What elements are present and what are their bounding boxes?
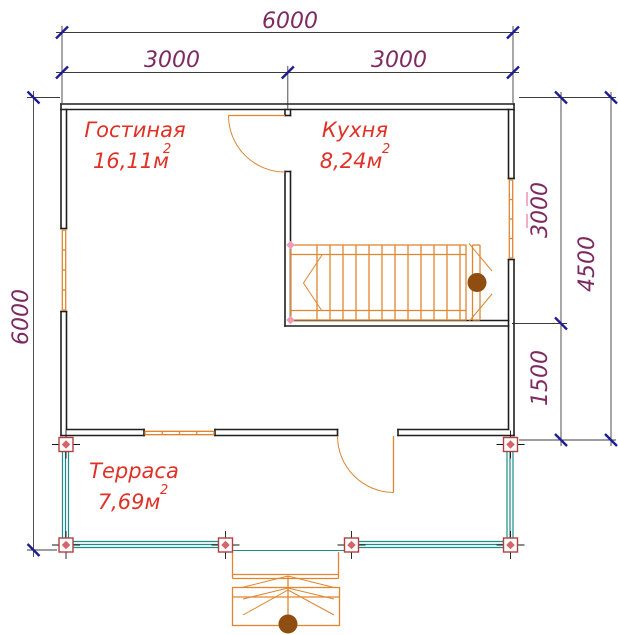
terrace-post xyxy=(338,531,366,559)
door-swing-arc xyxy=(338,436,394,493)
room-name-living: Гостиная xyxy=(84,118,185,142)
window-right xyxy=(509,180,512,258)
dim-label-top-right: 3000 xyxy=(371,48,427,73)
door-living-kitchen xyxy=(229,116,286,173)
dim-label-top-total: 6000 xyxy=(262,9,318,34)
room-area-kitchen: 8,24м xyxy=(320,149,383,173)
staircase xyxy=(286,241,492,324)
step-post-circle xyxy=(279,615,298,634)
dim-label-right-upper: 3000 xyxy=(528,182,553,238)
floor-plan-svg: 6000 3000 3000 6000 3000 1500 4500 xyxy=(0,0,618,635)
room-area-exp-kitchen: 2 xyxy=(382,142,390,157)
window-left xyxy=(62,230,65,310)
room-area-terrace: 7,69м xyxy=(98,490,161,514)
stair-treads xyxy=(317,246,460,320)
room-area-exp-terrace: 2 xyxy=(160,483,168,498)
room-labels: Гостиная 16,11м 2 Кухня 8,24м 2 Терраса … xyxy=(84,118,390,514)
interior-walls xyxy=(285,110,509,327)
dimension-labels: 6000 3000 3000 6000 3000 1500 4500 xyxy=(9,9,600,406)
stair-corner-marker xyxy=(286,241,294,249)
room-area-exp-living: 2 xyxy=(163,142,171,157)
room-name-terrace: Терраса xyxy=(89,459,179,483)
room-area-living: 16,11м xyxy=(93,149,169,173)
room-name-kitchen: Кухня xyxy=(322,118,388,142)
floor-plan-canvas: 6000 3000 3000 6000 3000 1500 4500 xyxy=(0,0,618,635)
dim-label-right-total: 4500 xyxy=(575,236,600,292)
entrance-steps xyxy=(233,552,340,634)
dim-label-right-lower: 1500 xyxy=(528,350,553,406)
dim-label-left-total: 6000 xyxy=(9,289,34,345)
terrace-post xyxy=(52,531,80,559)
terrace-post xyxy=(497,531,525,559)
stair-direction-chevron xyxy=(304,255,323,311)
terrace-post xyxy=(212,531,240,559)
door-entrance xyxy=(338,436,394,493)
window-bottom xyxy=(145,431,214,434)
dim-label-top-left: 3000 xyxy=(144,48,200,73)
door-swing-arc xyxy=(229,116,286,173)
newel-post-circle xyxy=(468,273,487,292)
stair-corner-marker xyxy=(286,316,294,324)
